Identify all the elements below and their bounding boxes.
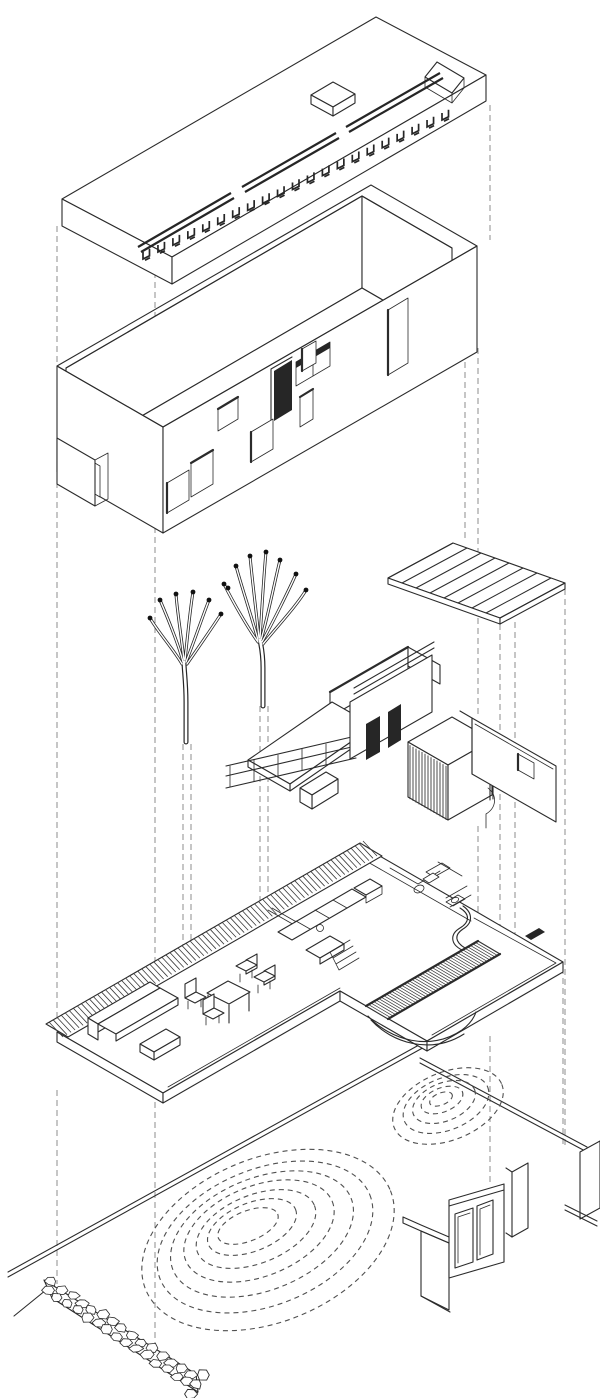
door-mat <box>525 928 545 940</box>
site-layer: Ground plane with dashed contour mounds,… <box>8 1040 600 1398</box>
axonometric-drawing: Exploded axonometric drawing of a single… <box>0 0 600 1398</box>
stone-wall <box>42 1277 210 1398</box>
floorplan-layer: Furnished floor plan with sofa, dining s… <box>46 841 563 1103</box>
interior-layer: Interior partitions, stair railing, hatc… <box>226 642 556 828</box>
canopy-layer: Slatted canopy panel <box>388 543 565 624</box>
gate-walls <box>403 1141 600 1312</box>
right-room-wall <box>460 711 556 828</box>
trees: Two leafless trees with black branch tip… <box>148 550 309 742</box>
drawing-sheet: Exploded axonometric drawing of a single… <box>0 0 600 1398</box>
gate-door-panel <box>477 1200 493 1260</box>
